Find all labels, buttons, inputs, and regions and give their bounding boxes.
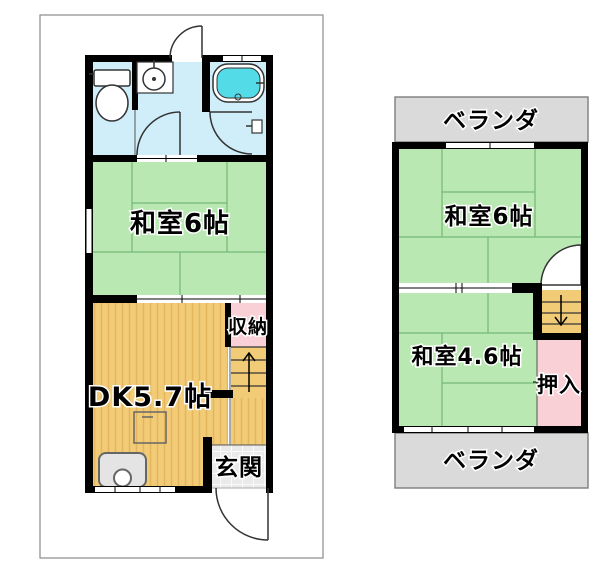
sliding-door-washitsu-top bbox=[137, 155, 197, 162]
window-floor2-bottom bbox=[404, 426, 534, 433]
floor1-washitsu6-label: 和室6帖 bbox=[130, 208, 230, 239]
floor1-shunou-label: 収納 bbox=[228, 315, 268, 338]
veranda-top-label: ベランダ bbox=[443, 107, 539, 134]
sliding-door-floor2-partition bbox=[399, 283, 512, 293]
sliding-door-washitsu-dk bbox=[137, 295, 266, 303]
veranda-bottom-label: ベランダ bbox=[443, 447, 539, 474]
window-floor2-top bbox=[446, 142, 534, 149]
floor2-plan: ベランダ 和室6帖 和室4.6帖 押入 ベランダ bbox=[392, 97, 588, 488]
stairs-down bbox=[542, 290, 581, 333]
floorplan-image: 和室6帖 DK5.7帖 収納 玄関 bbox=[0, 0, 613, 572]
floor1-plan: 和室6帖 DK5.7帖 収納 玄関 bbox=[40, 15, 323, 558]
bathtub bbox=[213, 64, 264, 102]
window-left-wall bbox=[86, 209, 92, 253]
window-top-wall bbox=[223, 55, 261, 62]
floor1-dk-label: DK5.7帖 bbox=[88, 382, 212, 413]
floor2-washitsu6-label: 和室6帖 bbox=[444, 203, 533, 230]
oshiire-label: 押入 bbox=[537, 373, 581, 397]
floorplan-svg: 和室6帖 DK5.7帖 収納 玄関 bbox=[0, 0, 613, 572]
kitchen-sink bbox=[99, 453, 146, 487]
floor1-genkan-label: 玄関 bbox=[215, 454, 263, 481]
floor2-washitsu46-label: 和室4.6帖 bbox=[412, 344, 523, 370]
window-bottom-wall bbox=[95, 486, 175, 493]
wash-basin bbox=[137, 60, 173, 93]
